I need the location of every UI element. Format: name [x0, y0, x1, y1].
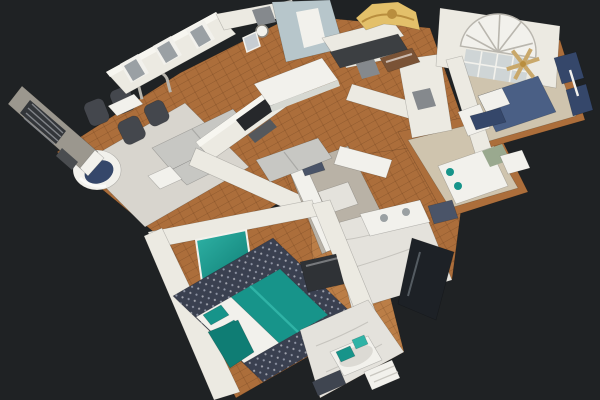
viewer-stage [0, 0, 600, 400]
vanity-sink [402, 208, 410, 216]
vanity-sink [380, 214, 388, 222]
wall-clock [256, 25, 268, 37]
guest-accent-pillow [454, 182, 462, 190]
guest-accent-pillow [446, 168, 454, 176]
dollhouse-3d-view[interactable] [0, 0, 600, 400]
